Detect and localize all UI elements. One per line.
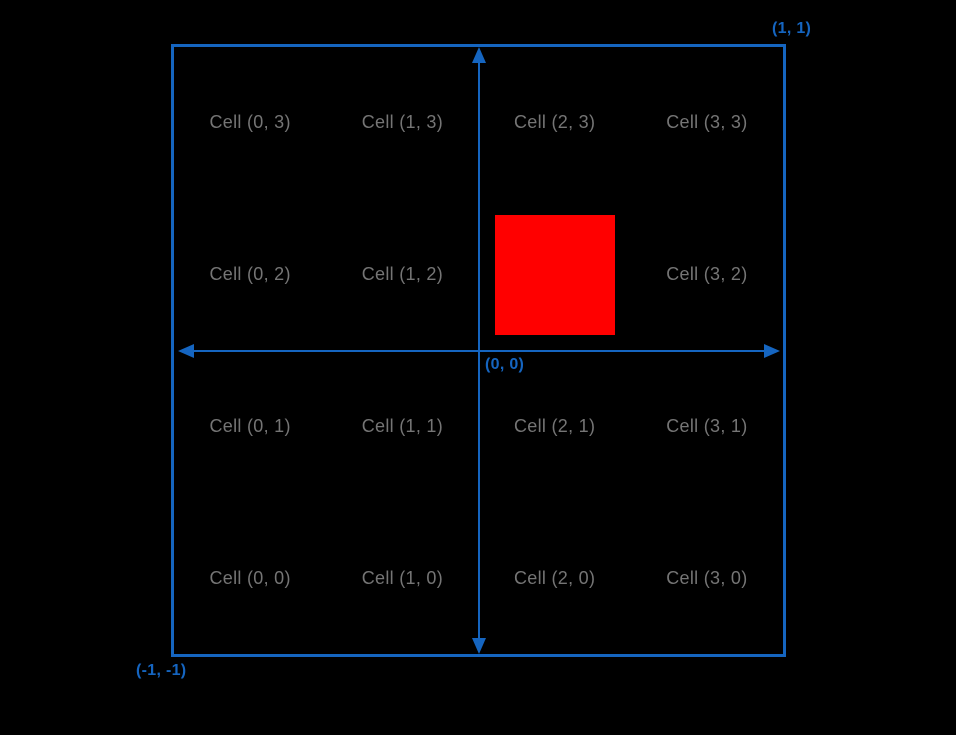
cell-label: Cell (2, 1) <box>514 416 595 437</box>
cell-3-0: Cell (3, 0) <box>631 502 783 654</box>
cell-label: Cell (3, 3) <box>666 112 747 133</box>
cell-2-0: Cell (2, 0) <box>479 502 631 654</box>
highlighted-cell-square <box>495 215 615 335</box>
cell-3-1: Cell (3, 1) <box>631 351 783 503</box>
x-axis-left-arrow-icon <box>178 344 194 358</box>
cell-label: Cell (1, 1) <box>362 416 443 437</box>
cell-label: Cell (2, 3) <box>514 112 595 133</box>
cell-0-3: Cell (0, 3) <box>174 47 326 199</box>
cell-label: Cell (0, 3) <box>209 112 290 133</box>
y-axis-up-arrow-icon <box>472 47 486 63</box>
y-axis-line <box>478 60 480 640</box>
cell-label: Cell (0, 0) <box>209 568 290 589</box>
diagram-canvas: Cell (0, 3) Cell (1, 3) Cell (2, 3) Cell… <box>0 0 956 735</box>
y-axis-down-arrow-icon <box>472 638 486 654</box>
coord-label-bottom-left: (-1, -1) <box>136 662 186 680</box>
cell-label: Cell (0, 2) <box>209 264 290 285</box>
cell-2-3: Cell (2, 3) <box>479 47 631 199</box>
cell-label: Cell (0, 1) <box>209 416 290 437</box>
cell-label: Cell (1, 3) <box>362 112 443 133</box>
cell-label: Cell (3, 2) <box>666 264 747 285</box>
cell-0-0: Cell (0, 0) <box>174 502 326 654</box>
cell-0-1: Cell (0, 1) <box>174 351 326 503</box>
cell-0-2: Cell (0, 2) <box>174 199 326 351</box>
x-axis-right-arrow-icon <box>764 344 780 358</box>
cell-1-0: Cell (1, 0) <box>326 502 478 654</box>
cell-1-1: Cell (1, 1) <box>326 351 478 503</box>
cell-3-3: Cell (3, 3) <box>631 47 783 199</box>
cell-1-3: Cell (1, 3) <box>326 47 478 199</box>
cell-3-2: Cell (3, 2) <box>631 199 783 351</box>
cell-1-2: Cell (1, 2) <box>326 199 478 351</box>
coord-label-origin: (0, 0) <box>485 356 524 374</box>
cell-label: Cell (2, 0) <box>514 568 595 589</box>
cell-label: Cell (1, 2) <box>362 264 443 285</box>
cell-label: Cell (3, 0) <box>666 568 747 589</box>
cell-label: Cell (3, 1) <box>666 416 747 437</box>
cell-label: Cell (1, 0) <box>362 568 443 589</box>
coord-label-top-right: (1, 1) <box>772 20 811 38</box>
cell-2-2 <box>479 199 631 351</box>
